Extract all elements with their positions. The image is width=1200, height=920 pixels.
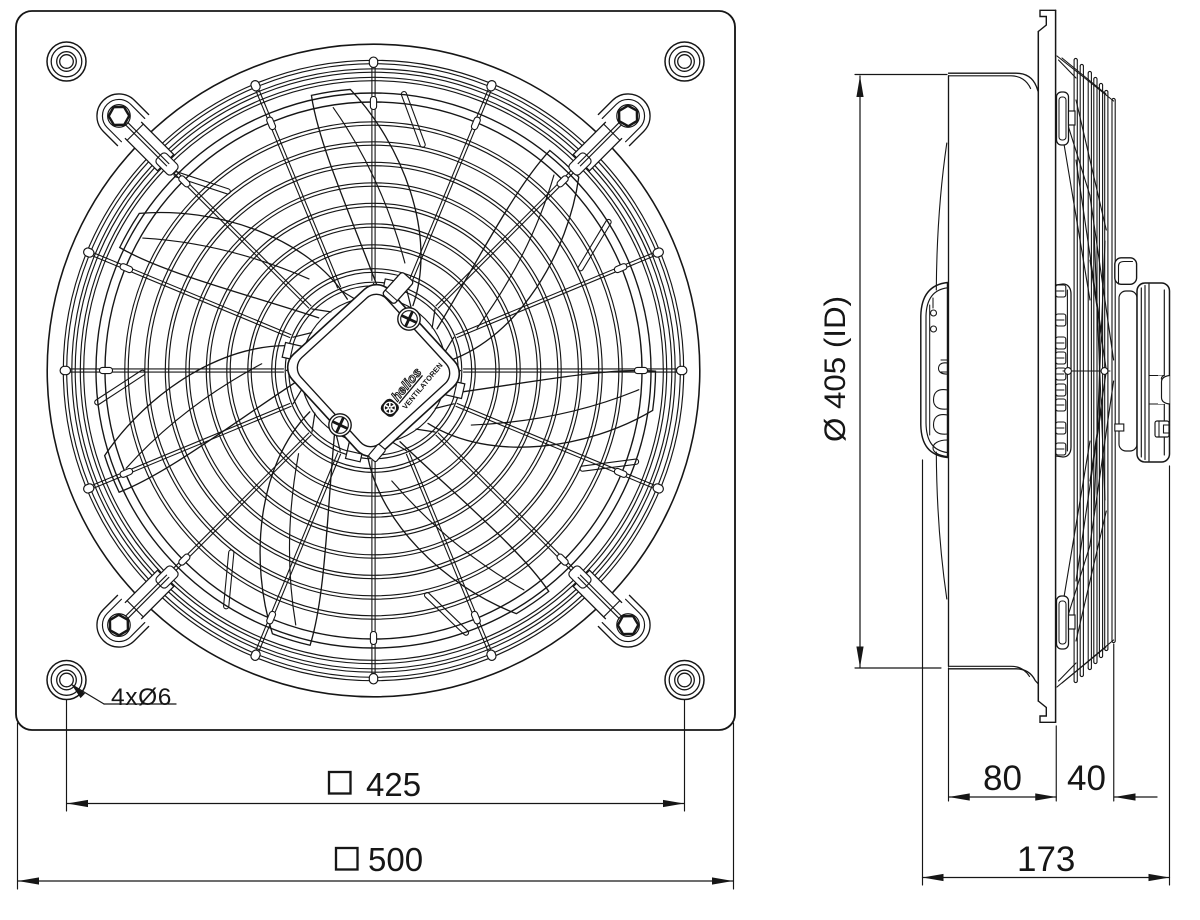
svg-text:425: 425: [366, 766, 421, 803]
svg-text:4xØ6: 4xØ6: [111, 684, 172, 711]
svg-text:80: 80: [983, 759, 1022, 798]
svg-text:500: 500: [368, 841, 423, 878]
svg-text:40: 40: [1067, 759, 1106, 798]
svg-text:173: 173: [1017, 840, 1075, 879]
svg-text:Ø 405 (ID): Ø 405 (ID): [819, 296, 852, 442]
